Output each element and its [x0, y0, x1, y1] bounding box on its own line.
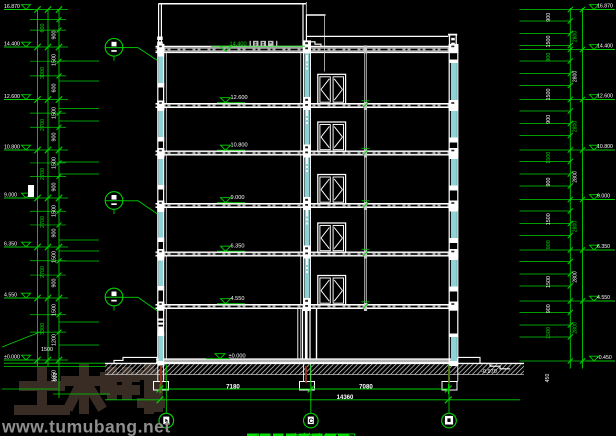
svg-text:600: 600	[40, 24, 46, 33]
svg-text:-0.970: -0.970	[481, 369, 497, 375]
svg-text:1500: 1500	[546, 89, 552, 101]
svg-text:3000: 3000	[40, 67, 46, 79]
svg-text:1500: 1500	[52, 205, 58, 217]
svg-text:6.350: 6.350	[4, 242, 17, 248]
svg-text:2800: 2800	[573, 121, 579, 133]
svg-text:2800: 2800	[573, 221, 579, 233]
svg-text:7180: 7180	[226, 384, 240, 391]
svg-text:900: 900	[546, 53, 552, 62]
svg-text:2800: 2800	[573, 31, 579, 43]
svg-text:900: 900	[53, 373, 59, 382]
svg-text:±0.000: ±0.000	[4, 355, 20, 361]
svg-text:2800: 2800	[573, 71, 579, 83]
svg-text:2700: 2700	[40, 168, 46, 180]
svg-text:14.400: 14.400	[230, 41, 247, 47]
svg-text:900: 900	[546, 240, 552, 249]
svg-text:1500: 1500	[52, 304, 58, 316]
svg-text:4.550: 4.550	[4, 293, 17, 299]
svg-text:900: 900	[546, 115, 552, 124]
svg-text:9.000: 9.000	[597, 194, 610, 200]
svg-text:1200: 1200	[52, 334, 58, 346]
svg-text:10.800: 10.800	[597, 144, 613, 150]
svg-text:1500: 1500	[546, 213, 552, 225]
svg-text:1500: 1500	[546, 327, 552, 339]
svg-text:600: 600	[52, 84, 58, 93]
svg-text:12.600: 12.600	[597, 94, 613, 100]
svg-text:C: C	[309, 418, 314, 425]
svg-text:14.400: 14.400	[4, 42, 20, 48]
svg-text:2700: 2700	[40, 216, 46, 228]
svg-text:9.000: 9.000	[4, 193, 17, 199]
svg-text:4.550: 4.550	[231, 296, 245, 302]
svg-text:900: 900	[52, 229, 58, 238]
svg-text:6.350: 6.350	[231, 243, 245, 249]
svg-text:10.800: 10.800	[231, 142, 248, 148]
svg-text:1500: 1500	[52, 157, 58, 169]
svg-text:-0.450: -0.450	[597, 355, 612, 361]
svg-text:14.400: 14.400	[597, 44, 613, 50]
svg-text:www.tumubang.net: www.tumubang.net	[1, 417, 171, 436]
svg-text:14360: 14360	[337, 395, 354, 401]
svg-text:1500: 1500	[52, 107, 58, 119]
svg-text:9.000: 9.000	[231, 195, 245, 201]
svg-text:6.350: 6.350	[597, 244, 610, 250]
svg-text:2700: 2700	[40, 266, 46, 278]
svg-text:1500: 1500	[41, 347, 53, 353]
svg-text:450: 450	[545, 374, 551, 383]
svg-text:1500: 1500	[546, 36, 552, 48]
svg-text:900: 900	[52, 31, 58, 40]
svg-text:4.550: 4.550	[597, 295, 610, 301]
svg-text:900: 900	[546, 304, 552, 313]
svg-text:1500: 1500	[52, 54, 58, 66]
svg-text:900: 900	[52, 183, 58, 192]
svg-text:10.800: 10.800	[4, 145, 20, 151]
svg-text:900: 900	[546, 13, 552, 22]
svg-text:12.600: 12.600	[231, 95, 248, 101]
svg-text:16.870: 16.870	[597, 4, 613, 10]
svg-text:900: 900	[546, 178, 552, 187]
svg-text:±0.000: ±0.000	[229, 354, 246, 360]
svg-text:2800: 2800	[573, 271, 579, 283]
svg-text:3300: 3300	[40, 323, 46, 335]
svg-text:1500: 1500	[546, 276, 552, 288]
svg-text:16.870: 16.870	[4, 4, 20, 10]
svg-text:2800: 2800	[573, 322, 579, 334]
svg-text:12.600: 12.600	[4, 94, 20, 100]
svg-text:7080: 7080	[359, 384, 373, 391]
svg-text:900: 900	[52, 133, 58, 142]
svg-text:2800: 2800	[573, 171, 579, 183]
svg-text:2700: 2700	[40, 119, 46, 131]
svg-text:900: 900	[52, 279, 58, 288]
svg-text:1500: 1500	[546, 152, 552, 164]
svg-text:1500: 1500	[52, 251, 58, 263]
